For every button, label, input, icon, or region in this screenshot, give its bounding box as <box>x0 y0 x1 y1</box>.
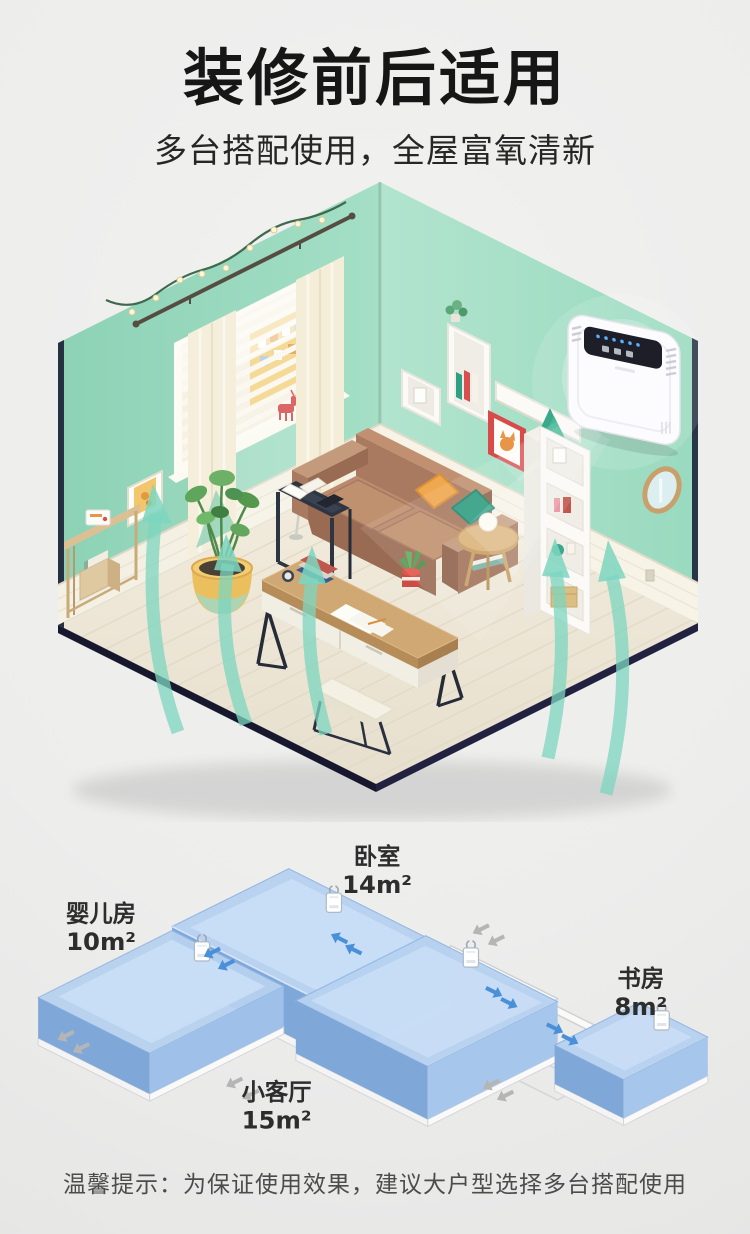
purifier-icon <box>463 941 478 967</box>
plan-label-study-area: 8m² <box>614 992 667 1021</box>
plan-label-living-name: 小客厅 <box>242 1078 312 1106</box>
page-subtitle: 多台搭配使用，全屋富氧清新 <box>0 124 750 172</box>
plan-label-baby-name: 婴儿房 <box>66 900 136 928</box>
plan-label-bedroom-name: 卧室 <box>354 843 401 871</box>
page: 装修前后适用 多台搭配使用，全屋富氧清新 <box>0 0 750 1234</box>
plan-label-baby-area: 10m² <box>66 927 136 956</box>
floor-plan-illustration: 婴儿房 10m² 卧室 14m² 书房 8m² 小客厅 15m² <box>30 834 720 1151</box>
page-title: 装修前后适用 <box>0 0 750 114</box>
radio <box>86 510 110 525</box>
room-illustration <box>50 172 700 822</box>
plan-label-living-area: 15m² <box>242 1106 312 1135</box>
plan-label-bedroom-area: 14m² <box>342 870 412 899</box>
plan-label-study-name: 书房 <box>618 965 665 993</box>
wall-socket <box>646 570 654 581</box>
footer-tip: 温馨提示：为保证使用效果，建议大户型选择多台搭配使用 <box>0 1165 750 1199</box>
